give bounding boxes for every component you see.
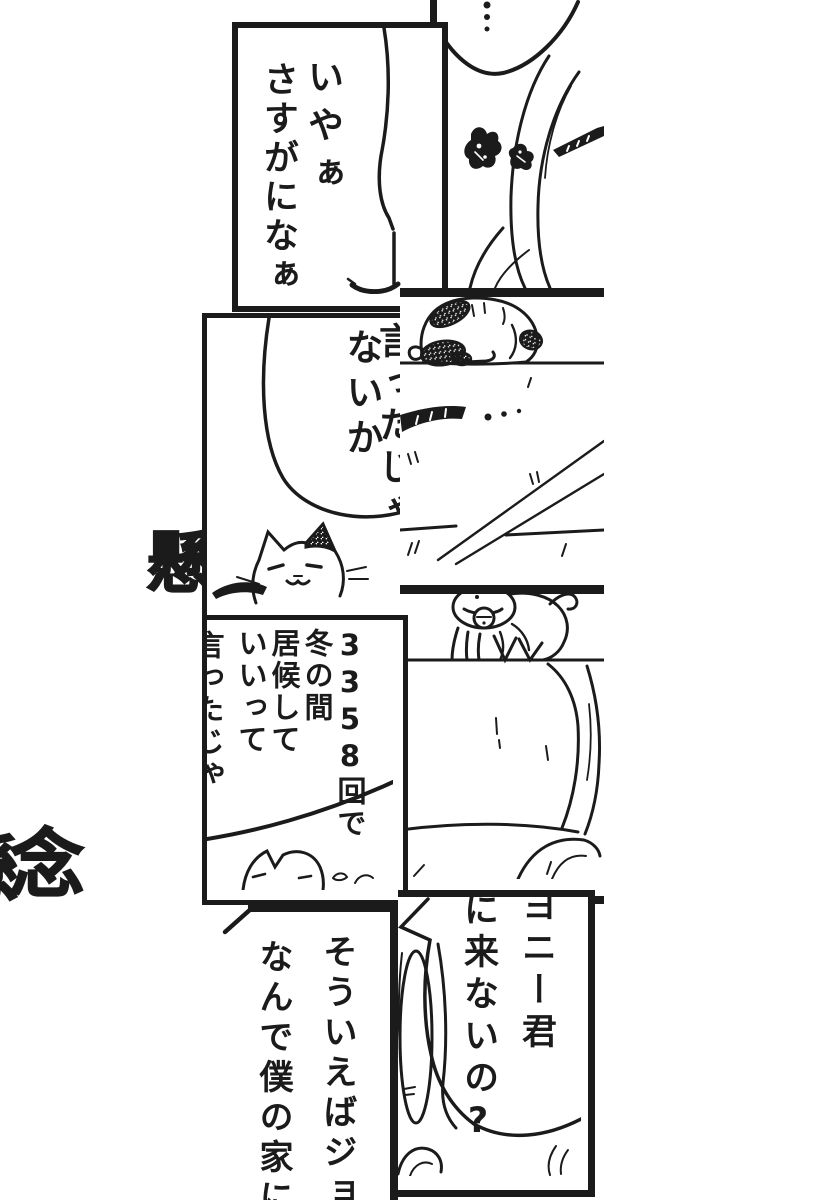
speech-text: に来ないの?	[460, 891, 495, 1148]
panel-right-strip	[400, 288, 604, 594]
speech-text: いいって	[236, 628, 265, 756]
speech-bubble-arc	[437, 2, 578, 74]
chin-shadow	[212, 582, 267, 599]
speech-text: 居候して	[269, 628, 298, 756]
standing-cat	[452, 594, 577, 660]
motion-dots	[485, 409, 522, 421]
speech-text: ヨニー君	[518, 890, 553, 1055]
ellipsis-dots	[484, 2, 491, 32]
speech-text: 3358回で	[335, 628, 364, 840]
speech-text: そういえばジョ	[320, 934, 354, 1200]
calico-ear-patch	[306, 524, 335, 551]
speed-line	[438, 441, 604, 560]
manga-page: 懸 念 懸	[0, 0, 820, 1200]
tail-sweep	[400, 406, 466, 432]
loafing-cat-drawing	[400, 297, 604, 585]
speech-text: 言ったじゃ	[207, 630, 222, 790]
panel-count: 3358回で 冬の間 居候して いいって 言ったじゃ	[202, 615, 408, 905]
cat-toy-scribbles	[464, 127, 533, 170]
sfx-kanji-edge-partial: 懸	[0, 834, 18, 908]
panel-bottom-left: そういえばジョ なんで僕の家に	[248, 905, 398, 1200]
speech-text: 冬の間	[302, 628, 331, 724]
sofa-and-toys-drawing	[437, 0, 604, 288]
panel-corner-spike	[222, 902, 254, 936]
bell-cat-sofa-drawing	[400, 594, 604, 879]
speech-text: ないか	[343, 328, 380, 463]
panel-bottom-right: ヨニー君 に来ないの?	[398, 890, 595, 1197]
speed-line	[456, 474, 604, 564]
speech-text: さすがになぁ‥	[260, 61, 295, 312]
cat-paw	[398, 1148, 441, 1174]
sfx-kanji-bottom: 念	[10, 828, 84, 902]
panel-mid-right	[400, 585, 604, 904]
speech-text: なんで僕の家に	[256, 939, 290, 1200]
panel-top-right	[430, 0, 611, 288]
panel-top-left: いやぁ さすがになぁ‥	[232, 22, 448, 312]
speech-text: いやぁ	[304, 58, 340, 202]
clipped-speech-col: 言ったじゃ	[207, 630, 224, 805]
